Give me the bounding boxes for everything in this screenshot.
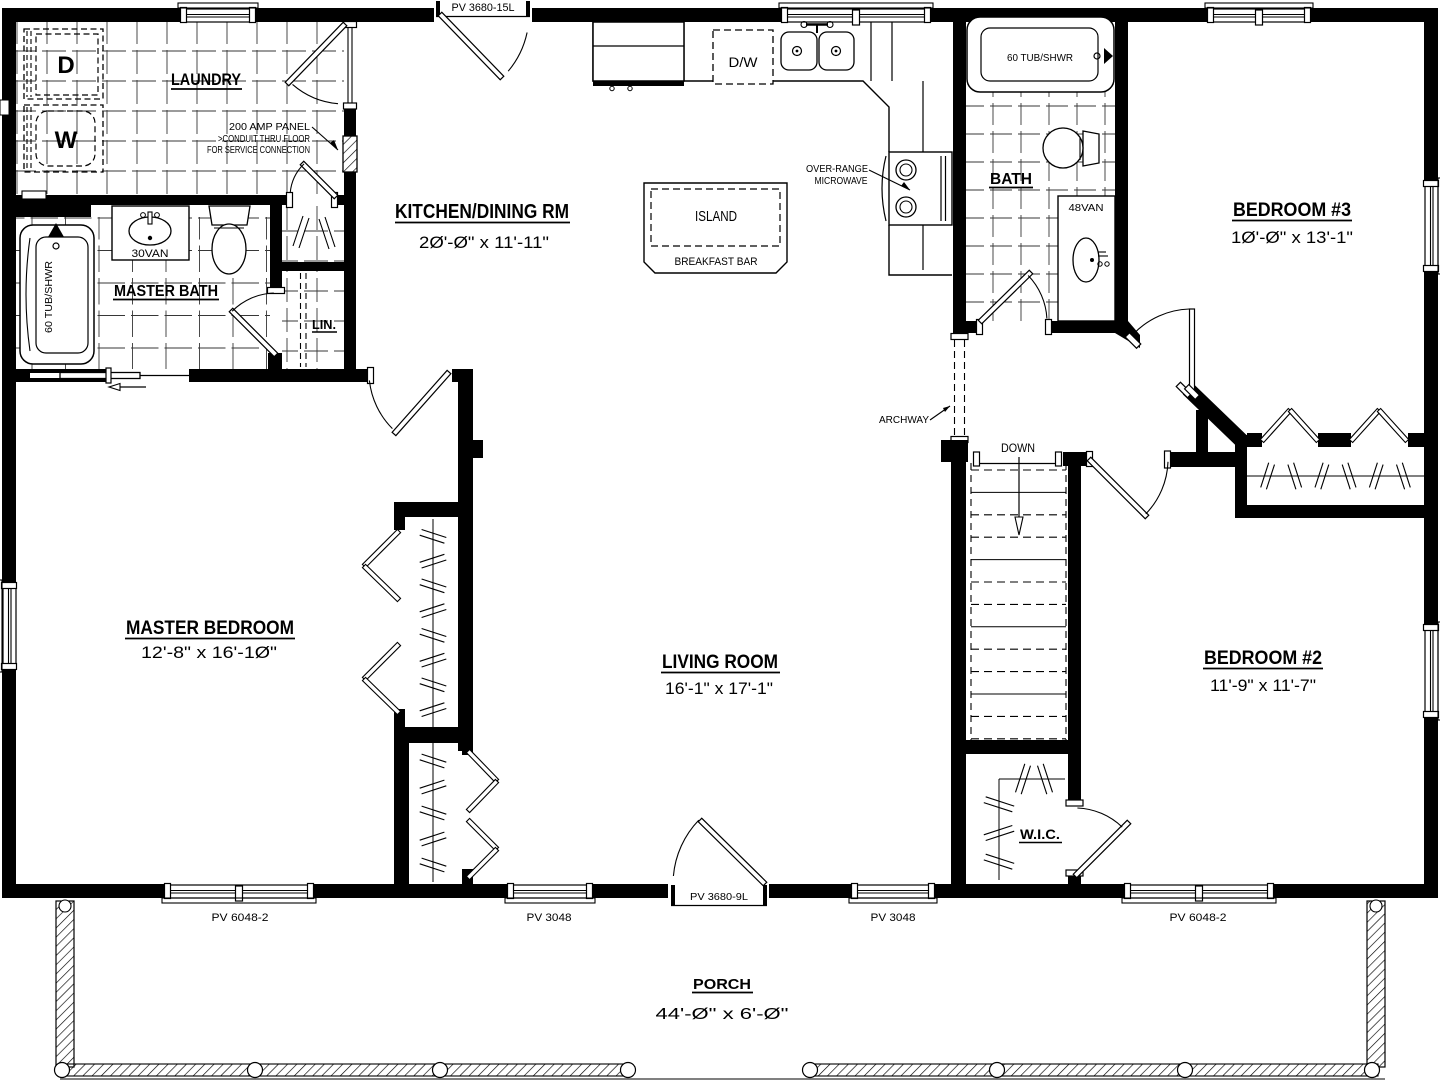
svg-text:PV 3048: PV 3048 <box>527 912 572 924</box>
svg-text:ISLAND: ISLAND <box>695 209 737 225</box>
svg-text:BATH: BATH <box>990 171 1032 188</box>
svg-text:PV 3048: PV 3048 <box>871 912 916 924</box>
svg-text:PV 3680-15L: PV 3680-15L <box>452 2 515 14</box>
svg-text:W: W <box>55 127 78 154</box>
svg-text:11'-9" x 11'-7": 11'-9" x 11'-7" <box>1210 677 1316 695</box>
svg-text:ARCHWAY: ARCHWAY <box>879 414 929 426</box>
svg-text:60 TUB/SHWR: 60 TUB/SHWR <box>1007 52 1073 64</box>
svg-text:KITCHEN/DINING RM: KITCHEN/DINING RM <box>395 201 569 223</box>
svg-text:PV 3680-9L: PV 3680-9L <box>690 891 748 903</box>
svg-text:MASTER BEDROOM: MASTER BEDROOM <box>126 617 294 639</box>
svg-text:44'-Ø" x 6'-Ø": 44'-Ø" x 6'-Ø" <box>656 1006 789 1023</box>
svg-text:2Ø'-Ø" x 11'-11": 2Ø'-Ø" x 11'-11" <box>419 234 549 252</box>
svg-text:DOWN: DOWN <box>1001 443 1035 455</box>
svg-text:12'-8" x 16'-1Ø": 12'-8" x 16'-1Ø" <box>141 644 277 662</box>
svg-text:MASTER BATH: MASTER BATH <box>114 283 218 300</box>
svg-text:PORCH: PORCH <box>693 977 751 993</box>
svg-text:W.I.C.: W.I.C. <box>1020 827 1060 842</box>
svg-text:D: D <box>57 52 74 79</box>
svg-text:16'-1" x 17'-1": 16'-1" x 17'-1" <box>665 680 773 698</box>
svg-text:60 TUB/SHWR: 60 TUB/SHWR <box>43 261 55 333</box>
svg-text:1Ø'-Ø" x 13'-1": 1Ø'-Ø" x 13'-1" <box>1231 229 1353 247</box>
svg-text:48VAN: 48VAN <box>1069 202 1104 214</box>
svg-text:>CONDUIT THRU FLOOR: >CONDUIT THRU FLOOR <box>218 134 310 145</box>
svg-text:BREAKFAST BAR: BREAKFAST BAR <box>675 256 758 268</box>
svg-text:MICROWAVE: MICROWAVE <box>815 175 868 187</box>
svg-text:D/W: D/W <box>729 54 759 70</box>
svg-text:FOR SERVICE CONNECTION: FOR SERVICE CONNECTION <box>207 145 310 156</box>
svg-text:OVER-RANGE: OVER-RANGE <box>806 163 868 175</box>
svg-text:PV 6048-2: PV 6048-2 <box>1170 912 1227 924</box>
svg-text:BEDROOM #2: BEDROOM #2 <box>1204 647 1322 669</box>
svg-text:LAUNDRY: LAUNDRY <box>171 71 241 89</box>
svg-text:BEDROOM #3: BEDROOM #3 <box>1233 199 1351 221</box>
svg-text:LIN.: LIN. <box>312 318 336 332</box>
svg-text:PV 6048-2: PV 6048-2 <box>212 912 269 924</box>
svg-text:LIVING ROOM: LIVING ROOM <box>662 651 778 673</box>
svg-text:30VAN: 30VAN <box>132 248 169 260</box>
svg-text:200 AMP PANEL: 200 AMP PANEL <box>229 121 310 133</box>
